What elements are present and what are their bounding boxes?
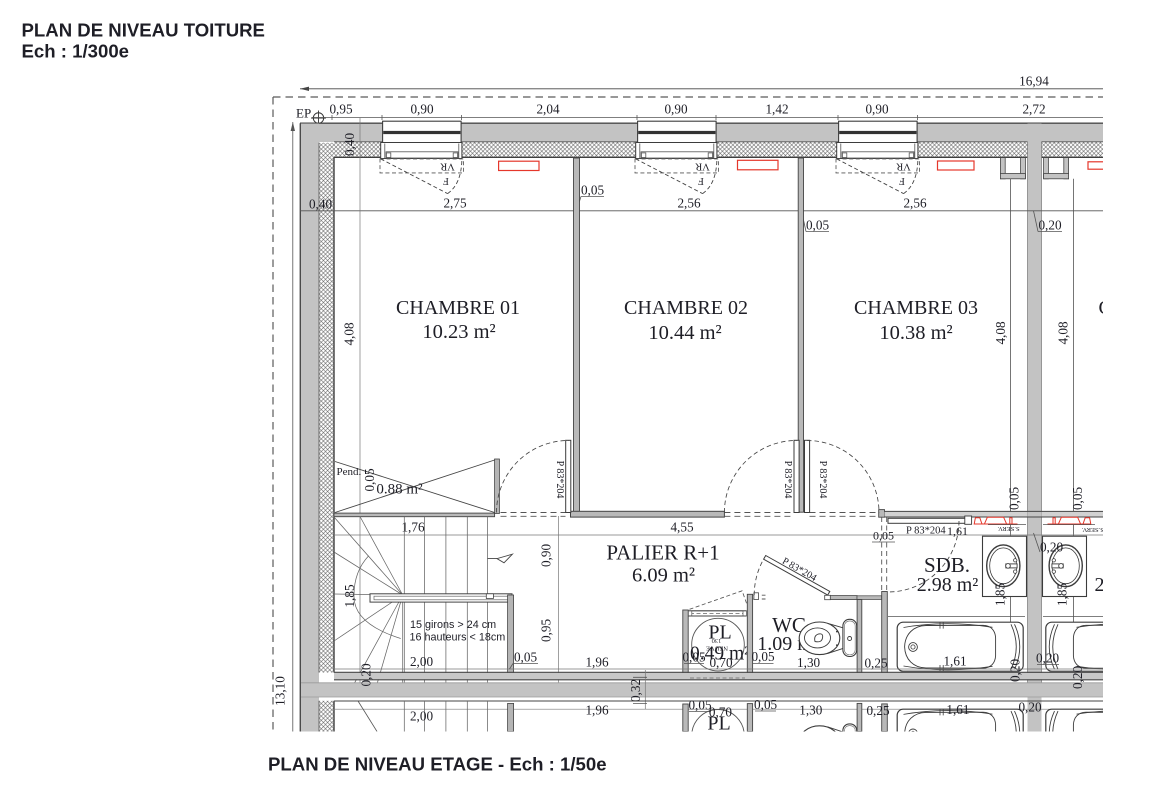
svg-text:0,90: 0,90 (865, 102, 888, 117)
svg-text:P 83*204: P 83*204 (906, 526, 946, 537)
svg-text:10.38 m²: 10.38 m² (879, 322, 952, 344)
svg-text:15 girons > 24 cm: 15 girons > 24 cm (410, 619, 496, 631)
svg-text:PLAN DE NIVEAU TOITURE: PLAN DE NIVEAU TOITURE (22, 20, 265, 41)
svg-text:0,05: 0,05 (682, 650, 705, 665)
svg-text:1,85: 1,85 (1055, 583, 1070, 606)
svg-text:0,90: 0,90 (664, 102, 687, 117)
svg-text:0,25: 0,25 (864, 656, 887, 671)
svg-text:0,05: 0,05 (1007, 487, 1022, 510)
svg-text:4,08: 4,08 (1056, 321, 1071, 344)
svg-text:Pend.: Pend. (337, 466, 362, 478)
svg-text:P 83*204: P 83*204 (817, 461, 828, 499)
svg-text:0,05: 0,05 (754, 697, 777, 712)
svg-text:0.88 m²: 0.88 m² (376, 482, 423, 498)
svg-text:1,61: 1,61 (943, 654, 966, 669)
svg-text:CHAMBRE 03: CHAMBRE 03 (854, 297, 978, 319)
svg-text:Ech : 1/300e: Ech : 1/300e (22, 41, 130, 62)
svg-text:0,05: 0,05 (1070, 487, 1085, 510)
svg-text:16 hauteurs < 18cm: 16 hauteurs < 18cm (410, 632, 506, 644)
svg-text:0,20: 0,20 (1008, 659, 1023, 682)
svg-text:0,20: 0,20 (1036, 651, 1059, 666)
svg-text:EP: EP (296, 106, 311, 121)
svg-text:2,75: 2,75 (443, 196, 466, 211)
svg-text:16,94: 16,94 (1019, 74, 1049, 89)
svg-text:CHAMBRE 02: CHAMBRE 02 (624, 297, 748, 319)
svg-text:0,20: 0,20 (359, 663, 374, 686)
svg-text:0,20: 0,20 (1070, 666, 1085, 689)
svg-text:0,05: 0,05 (581, 183, 604, 198)
svg-text:1,96: 1,96 (585, 703, 608, 718)
svg-text:2,56: 2,56 (903, 196, 926, 211)
svg-text:P 83*204: P 83*204 (554, 461, 565, 499)
svg-text:4,08: 4,08 (993, 321, 1008, 344)
svg-text:4,55: 4,55 (670, 520, 693, 535)
svg-text:1,61: 1,61 (947, 524, 968, 538)
svg-text:S.SERV.: S.SERV. (1081, 526, 1103, 533)
svg-text:0,32: 0,32 (628, 679, 643, 702)
svg-text:VR: VR (440, 161, 455, 172)
svg-text:1,85: 1,85 (342, 584, 357, 607)
svg-text:2,56: 2,56 (677, 196, 700, 211)
svg-text:S.SERV.: S.SERV. (997, 525, 1019, 532)
svg-text:0,40: 0,40 (342, 133, 357, 156)
svg-text:2,00: 2,00 (410, 709, 433, 724)
svg-text:0,05: 0,05 (806, 218, 829, 233)
svg-text:2,72: 2,72 (1022, 102, 1045, 117)
svg-text:0,90: 0,90 (410, 102, 433, 117)
svg-text:10.44 m²: 10.44 m² (648, 322, 721, 344)
svg-text:0,20: 0,20 (1040, 540, 1063, 555)
svg-text:1,85: 1,85 (993, 583, 1008, 606)
svg-text:0,95: 0,95 (329, 102, 352, 117)
svg-text:VR: VR (896, 161, 911, 172)
svg-text:0,05: 0,05 (362, 468, 377, 491)
svg-text:1,96: 1,96 (585, 655, 608, 670)
svg-text:0,70: 0,70 (709, 705, 732, 720)
svg-text:2,04: 2,04 (536, 102, 559, 117)
svg-text:1,61: 1,61 (946, 702, 969, 717)
svg-text:0,95: 0,95 (539, 619, 554, 642)
svg-text:0,05: 0,05 (751, 649, 774, 664)
svg-text:2,00: 2,00 (410, 654, 433, 669)
svg-text:13,10: 13,10 (273, 676, 288, 706)
svg-text:0,90: 0,90 (539, 544, 554, 567)
svg-text:0,25: 0,25 (866, 703, 889, 718)
svg-text:0,70: 0,70 (709, 655, 732, 670)
svg-text:6.09 m²: 6.09 m² (632, 565, 695, 587)
svg-text:2.98 m²: 2.98 m² (917, 574, 979, 596)
svg-text:F: F (443, 175, 449, 186)
svg-text:4,08: 4,08 (342, 322, 357, 345)
svg-text:10.23 m²: 10.23 m² (422, 321, 495, 343)
svg-text:0,05: 0,05 (514, 650, 537, 665)
svg-text:CHAMBRE 01: CHAMBRE 01 (396, 297, 520, 319)
svg-text:VR: VR (695, 161, 710, 172)
svg-text:1,42: 1,42 (765, 102, 788, 117)
svg-text:0,40: 0,40 (309, 197, 332, 212)
svg-text:0,20: 0,20 (1018, 700, 1041, 715)
svg-text:0,20: 0,20 (1038, 218, 1061, 233)
svg-text:1,30: 1,30 (797, 655, 820, 670)
svg-text:PLAN DE NIVEAU ETAGE - Ech : 1: PLAN DE NIVEAU ETAGE - Ech : 1/50e (268, 754, 607, 775)
svg-text:0,05: 0,05 (873, 529, 894, 543)
svg-text:1,30: 1,30 (799, 703, 822, 718)
svg-text:F: F (899, 175, 905, 186)
svg-text:1,76: 1,76 (401, 520, 424, 535)
svg-text:F: F (698, 175, 704, 186)
svg-text:PALIER R+1: PALIER R+1 (606, 541, 719, 565)
svg-text:P 83*204: P 83*204 (782, 461, 793, 499)
